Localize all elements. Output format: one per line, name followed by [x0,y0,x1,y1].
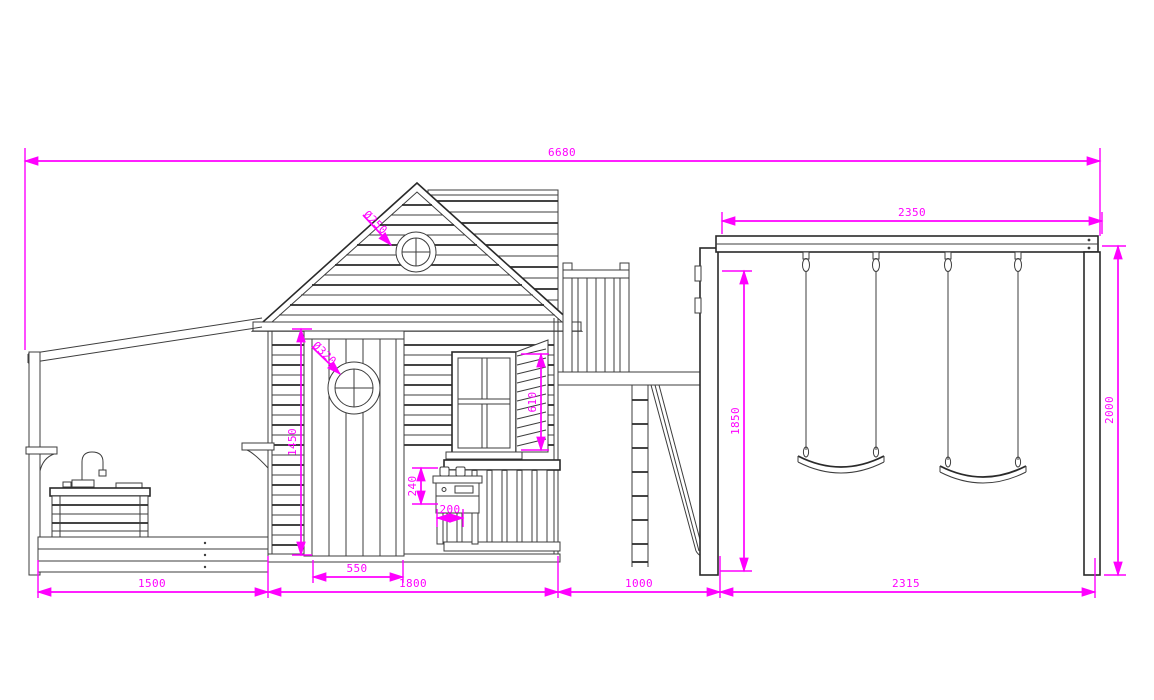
dim-post-height-label: 1850 [729,407,742,435]
ladder [632,385,648,567]
countertop [50,488,150,496]
swing-seat-bottom [940,466,1026,483]
window-mullion-horizontal [458,399,510,404]
swing-chain-link [873,259,880,272]
window-sill [446,452,522,459]
dim-stove-height: 240 [406,468,438,504]
dim-house-width-label: 1800 [399,577,427,590]
swing-chain-link [1015,259,1022,272]
railing-post-left [563,263,572,372]
swing-seat-top [798,456,884,467]
elevation-drawing: 6680 2350 2000 1850 1450 [0,0,1154,700]
dim-frame-height: 2000 [1102,246,1126,575]
dim-overall-width-label: 6680 [548,146,576,159]
swing-frame-post [1084,252,1100,575]
swing-seat-bottom [798,456,884,473]
dim-beam-length: 2350 [722,206,1102,234]
post-shelf-board [26,447,57,454]
ladder-rungs [632,400,648,562]
door-header [304,331,404,339]
platform-railing [563,263,629,372]
railing-balusters [578,278,614,372]
swing-hanger [873,252,879,259]
wall-shelf-corbel [247,450,268,468]
deck-screw [204,566,206,568]
dim-swing-bay-width-label: 2315 [892,577,920,590]
swing-hanger [803,252,809,259]
deck-box [38,537,268,572]
balustrade-bottom-rail [444,542,560,551]
dim-post-height: 1850 [720,271,752,571]
door [304,331,404,556]
stove-top [433,476,482,483]
swing-seat-top [940,466,1026,477]
stove-knob-left [440,467,449,476]
dim-door-width-label: 550 [346,562,367,575]
slide-rails [651,385,703,551]
deck-screw [204,554,206,556]
post-cleat-upper [695,266,701,281]
railing-post-right [620,263,629,372]
tower [558,248,718,575]
wall-shelf-bracket [242,443,274,468]
elevation-drawing-page: 6680 2350 2000 1850 1450 [0,0,1154,700]
porch-roof [28,318,262,363]
faucet-handle [63,482,71,487]
beam-bolt [1088,239,1091,242]
swing-ropes [806,271,876,450]
baluster [522,470,532,542]
platform-deck [558,372,718,385]
swing-frame-beam [716,236,1098,252]
baluster [537,470,547,542]
dim-tower-width-label: 1000 [625,577,653,590]
mud-kitchen [50,452,150,537]
stove-leg-right [472,513,478,544]
door-jamb-left [304,339,312,556]
swing-hanger [1015,252,1021,259]
deck-base [38,537,268,572]
swing-chain-link [945,259,952,272]
stove-knob-right [456,467,465,476]
dim-door-width: 550 [313,560,403,583]
faucet-base [72,480,94,487]
railing-top-rail [563,270,629,278]
post-shelf-corbel [40,454,54,471]
dim-stove-height-label: 240 [406,475,419,496]
swing-set [716,236,1100,575]
dim-beam-length-label: 2350 [898,206,926,219]
swing-ropes [948,271,1018,460]
swing-left [798,252,884,473]
baluster [507,470,517,542]
beam-bolt [1088,247,1091,250]
baluster [492,470,502,542]
swing-chain-link [803,259,810,272]
dim-door-height-label: 1450 [286,428,299,456]
faucet-spout [99,470,106,476]
house [242,183,581,562]
ladder-rails [632,385,648,567]
dim-window-height-label: 610 [526,391,539,412]
door-jamb-right [396,339,404,556]
swing-right [940,252,1026,483]
porch [26,318,268,575]
post-cleat-lower [695,298,701,313]
dim-swing-bay-width: 2315 [720,558,1095,598]
wall-shelf-board [242,443,274,450]
deck-screw [204,542,206,544]
tower-post [700,248,718,575]
dim-porch-width-label: 1500 [138,577,166,590]
swing-hanger [945,252,951,259]
dim-stove-depth-label: 200 [439,503,460,516]
dim-frame-height-label: 2000 [1103,396,1116,424]
